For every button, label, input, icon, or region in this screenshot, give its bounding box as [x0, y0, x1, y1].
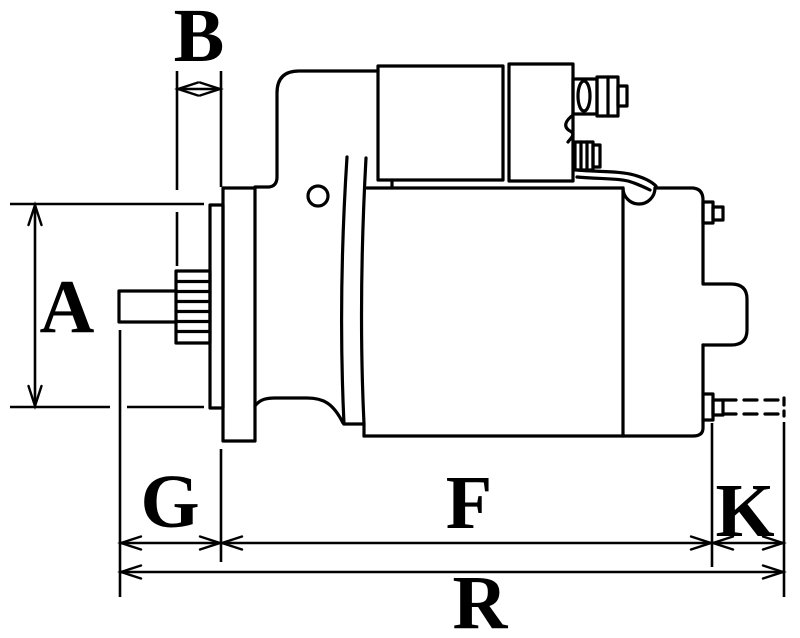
dimension-R: R [121, 561, 783, 638]
inspection-hole [308, 186, 328, 206]
dimension-F: F [222, 461, 711, 550]
dimension-K: K [713, 469, 783, 553]
motor-yoke [364, 188, 623, 436]
housing-yoke-junction-right [362, 158, 366, 424]
rear-end-housing [623, 188, 784, 436]
dim-A-label: A [40, 265, 95, 349]
terminal-large-tip [618, 86, 627, 106]
housing-yoke-junction-left [342, 157, 347, 424]
terminal-stud-small [575, 142, 656, 204]
pinion-gear [176, 271, 210, 343]
dim-R-label: R [453, 561, 509, 638]
end-housing-bottom [623, 420, 703, 436]
dimension-G: G [121, 460, 220, 550]
dim-K-label: K [715, 469, 774, 553]
dimension-B: B [174, 0, 225, 266]
spigot-plate [210, 205, 223, 408]
through-bolt-bottom-head [713, 400, 723, 415]
terminal-stud-large [573, 77, 627, 116]
pinion-shaft [119, 291, 176, 322]
drive-bracket-underside [255, 398, 343, 423]
solenoid-body [378, 66, 503, 180]
dim-G-label: G [140, 460, 199, 544]
drive-bracket-top [255, 71, 378, 187]
terminal-small-tip [593, 145, 600, 167]
terminal-large-washer [578, 81, 590, 111]
diagram-canvas: B A G F [0, 0, 800, 638]
solenoid [378, 64, 573, 188]
through-bolt-top-head [713, 207, 723, 220]
terminal-small-base [575, 142, 593, 170]
dim-B-label: B [174, 0, 225, 78]
mounting-flange [223, 188, 255, 441]
end-housing-top [655, 188, 703, 283]
solenoid-cap [509, 64, 573, 181]
housing-neck-step [344, 424, 364, 436]
dim-F-label: F [446, 461, 492, 545]
motor-outline [119, 64, 784, 441]
starter-motor-dimension-drawing: B A G F [0, 0, 800, 638]
terminal-small-facets [581, 142, 587, 170]
hidden-bolt-dashed-lines [723, 400, 784, 414]
pinion-gear-teeth [176, 282, 210, 332]
rear-bushing-boss [703, 284, 747, 345]
